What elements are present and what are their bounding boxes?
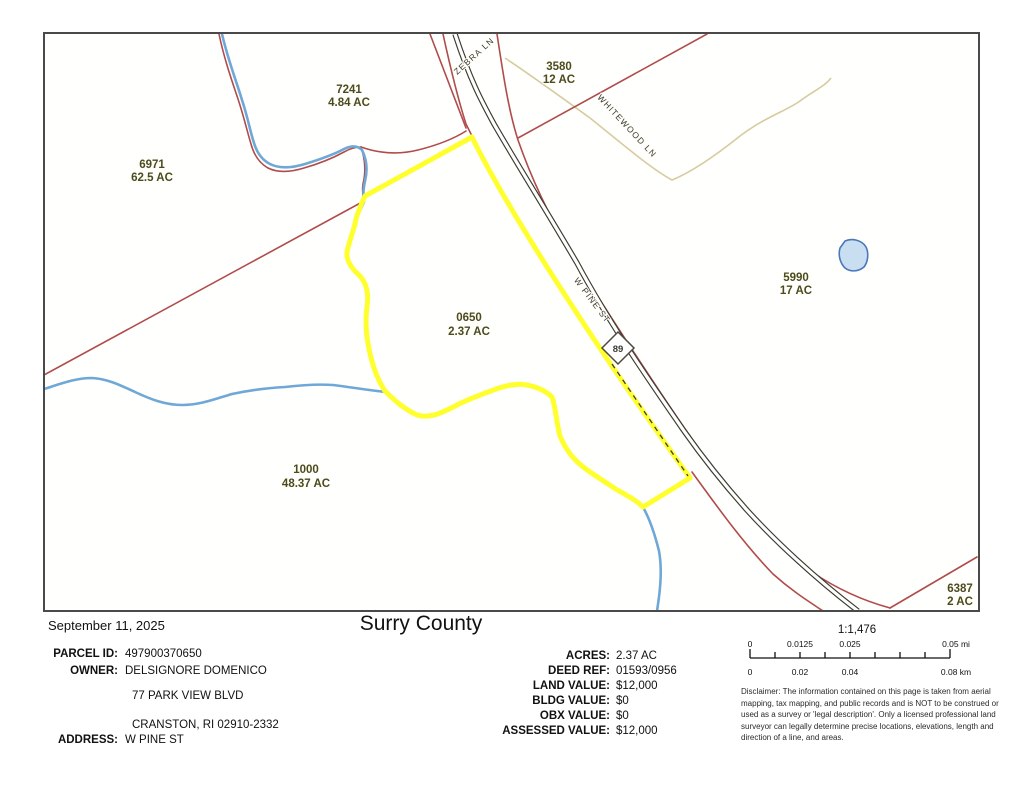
route-89-number: 89 [613,344,624,355]
svg-text:0: 0 [748,667,753,677]
owner-street: 77 PARK VIEW BLVD [132,690,243,702]
parcel-0650-id: 0650 [456,312,482,324]
parcel-3580-id: 3580 [546,61,572,73]
acres-row: ACRES:2.37 AC [300,650,730,665]
owner-address-line1: 77 PARK VIEW BLVD [40,690,243,705]
land-value-label: LAND VALUE: [300,680,610,692]
acres-value: 2.37 AC [616,650,657,662]
address-label: ADDRESS: [40,734,118,746]
obx-value-label: OBX VALUE: [300,710,610,722]
scale-bar-line [750,649,950,658]
parcel-1000-id: 1000 [293,464,319,476]
svg-text:0.0125: 0.0125 [787,639,813,649]
deed-ref-label: DEED REF: [300,665,610,677]
assessed-value-label: ASSESSED VALUE: [300,725,610,737]
street-label-whitewood-ln: WHITEWOOD LN [595,92,659,159]
parcel-id-value: 497900370650 [125,648,202,660]
situs-address-row: ADDRESS:W PINE ST [40,734,184,749]
land-value-value: $12,000 [616,680,658,692]
parcel-id-label: PARCEL ID: [40,648,118,660]
scale-bar: 1:1,476 0 0.0125 0.025 0.05 mi 0 0.02 0.… [740,613,1020,685]
obx-value-value: $0 [616,710,629,722]
bldg-value-row: BLDG VALUE:$0 [300,695,730,710]
parcel-3580-acres: 12 AC [543,74,575,86]
parcel-6971-acres: 62.5 AC [131,172,173,184]
svg-text:0.05 mi: 0.05 mi [942,639,970,649]
owner-value: DELSIGNORE DOMENICO [125,665,267,677]
deed-ref-value: 01593/0956 [616,665,677,677]
parcel-6387-acres: 2 AC [947,596,973,608]
parcel-boundary-lines [45,34,977,610]
map-date: September 11, 2025 [48,618,165,633]
w-pine-st-road [455,34,858,610]
page-title: Surry County [271,612,571,636]
plat-map-page: 89 ZEBRA LN WHITEWOOD LN W PINE ST 7241 … [0,0,1024,790]
assessed-value-value: $12,000 [616,725,658,737]
svg-text:0.04: 0.04 [842,667,859,677]
parcel-0650-acres: 2.37 AC [448,326,490,338]
parcel-5990-id: 5990 [783,272,809,284]
svg-text:0.08 km: 0.08 km [941,667,971,677]
parcel-1000-acres: 48.37 AC [282,478,330,490]
owner-label: OWNER: [40,665,118,677]
parcel-7241-id: 7241 [336,84,362,96]
assessed-value-row: ASSESSED VALUE:$12,000 [300,725,730,740]
svg-text:0: 0 [748,639,753,649]
deed-ref-row: DEED REF:01593/0956 [300,665,730,680]
acres-label: ACRES: [300,650,610,662]
scale-ratio: 1:1,476 [838,624,876,636]
parcel-id-row: PARCEL ID:497900370650 [40,648,202,663]
svg-text:0.02: 0.02 [792,667,809,677]
land-value-row: LAND VALUE:$12,000 [300,680,730,695]
bldg-value-label: BLDG VALUE: [300,695,610,707]
scale-km-labels: 0 0.02 0.04 0.08 km [748,667,971,677]
svg-text:0.025: 0.025 [839,639,861,649]
scale-mi-labels: 0 0.0125 0.025 0.05 mi [748,639,970,649]
owner-address-line2: CRANSTON, RI 02910-2332 [40,719,279,734]
stream-lines [45,34,661,610]
owner-row: OWNER:DELSIGNORE DOMENICO [40,665,267,680]
parcel-5990-acres: 17 AC [780,285,812,297]
disclaimer-text: Disclaimer: The information contained on… [741,686,1013,744]
parcel-7241-acres: 4.84 AC [328,97,370,109]
bldg-value-value: $0 [616,695,629,707]
parcel-6387-id: 6387 [947,583,973,595]
owner-city-state-zip: CRANSTON, RI 02910-2332 [132,719,279,731]
address-value: W PINE ST [125,734,184,746]
highlighted-parcel-outline [347,137,690,507]
parcel-6971-id: 6971 [139,159,165,171]
obx-value-row: OBX VALUE:$0 [300,710,730,725]
map-canvas[interactable]: 89 ZEBRA LN WHITEWOOD LN W PINE ST 7241 … [43,32,980,612]
pond [839,240,868,271]
parcel-labels: 7241 4.84 AC 3580 12 AC 6971 62.5 AC 599… [131,61,973,608]
